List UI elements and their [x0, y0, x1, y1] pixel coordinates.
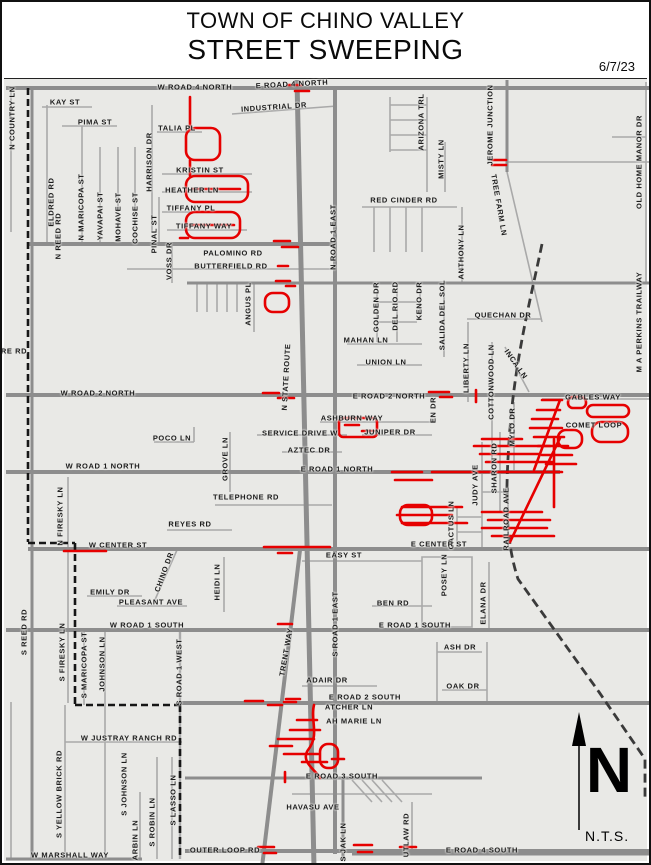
page-title: TOWN OF CHINO VALLEY: [2, 8, 649, 34]
street-sweeping-map-page: TOWN OF CHINO VALLEY STREET SWEEPING 6/7…: [0, 0, 651, 865]
map-header: TOWN OF CHINO VALLEY STREET SWEEPING: [2, 2, 649, 78]
nts-label: N.T.S.: [585, 828, 629, 844]
map-date: 6/7/23: [599, 59, 635, 74]
page-subtitle: STREET SWEEPING: [2, 34, 649, 66]
compass-n-letter: N: [579, 738, 639, 802]
north-compass: N N.T.S.: [529, 702, 649, 852]
